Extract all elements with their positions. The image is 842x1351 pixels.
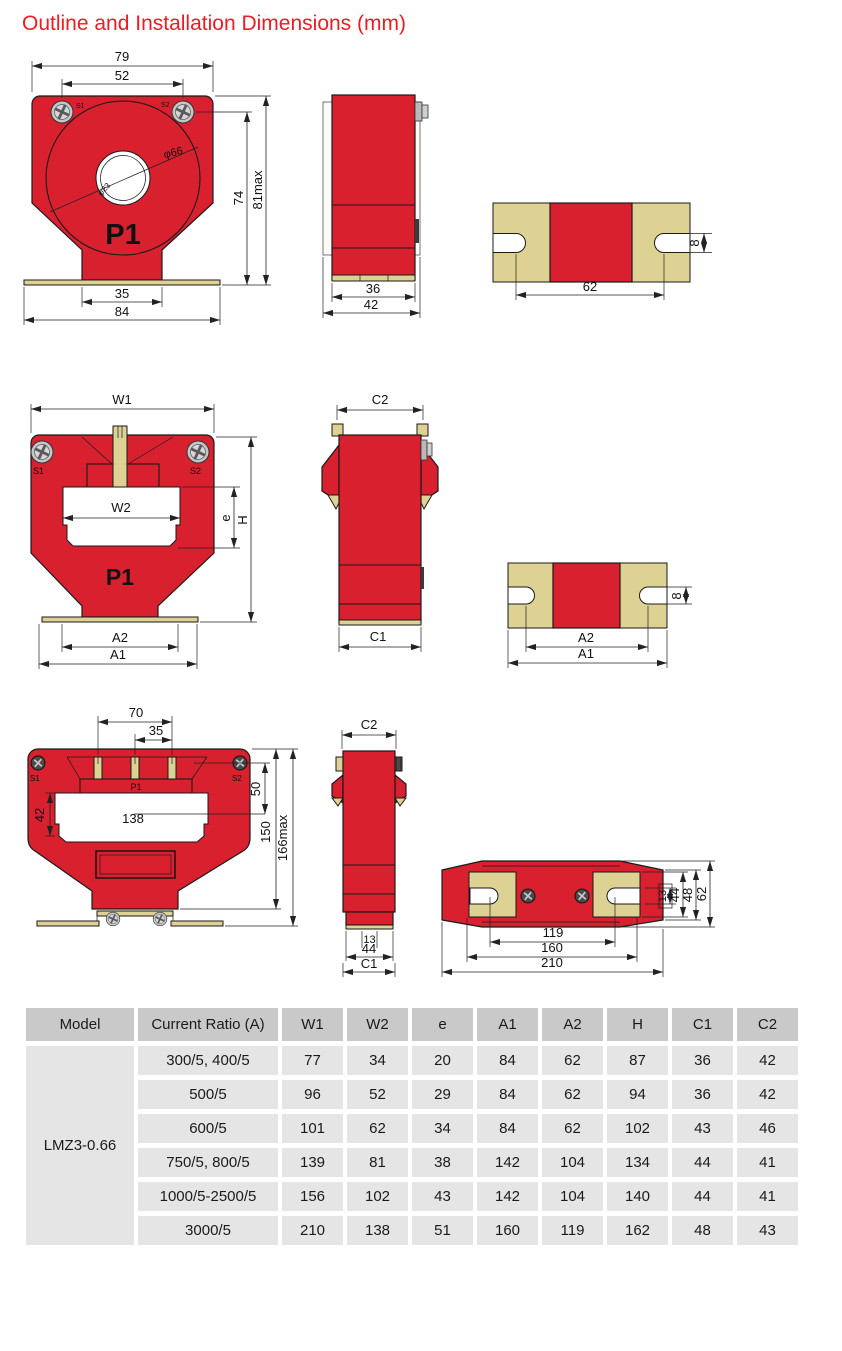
value-cell: 62: [347, 1114, 408, 1143]
col-header-c2: C2: [737, 1008, 798, 1041]
value-cell: 96: [282, 1080, 343, 1109]
terminal-screw-head: [422, 105, 428, 118]
svg-text:119: 119: [543, 925, 564, 940]
drawing-bottom-view-large: 13 44 48 62 119: [442, 861, 715, 977]
ratio-cell: 300/5, 400/5: [138, 1046, 278, 1075]
mount-slot-left: [508, 587, 535, 604]
dim-c1: C1: [339, 627, 421, 652]
value-cell: 44: [672, 1148, 733, 1177]
mount-slot-right: [640, 587, 667, 604]
ratio-cell: 500/5: [138, 1080, 278, 1109]
ct-body: [343, 751, 395, 912]
wing-left: [322, 445, 339, 502]
terminal-screw: [421, 440, 427, 460]
terminal-label-p1: P1: [105, 219, 140, 251]
svg-text:8: 8: [687, 239, 702, 246]
value-cell: 38: [412, 1148, 473, 1177]
value-cell: 142: [477, 1148, 538, 1177]
value-cell: 36: [672, 1080, 733, 1109]
value-cell: 77: [282, 1046, 343, 1075]
drawing-side-view-small: 36 42: [323, 95, 428, 318]
clamp-tab-left: [332, 424, 343, 436]
svg-text:70: 70: [129, 705, 143, 720]
screw-icon: [51, 101, 73, 123]
value-cell: 44: [672, 1182, 733, 1211]
outline-drawings: φ66 φ23 S1 S2 P1 79 52 74: [0, 0, 842, 1000]
value-cell: 62: [542, 1080, 603, 1109]
value-cell: 42: [737, 1080, 798, 1109]
terminal-label-s1: S1: [76, 103, 85, 110]
value-cell: 43: [737, 1216, 798, 1245]
screw-icon: [187, 441, 209, 463]
value-cell: 162: [607, 1216, 668, 1245]
drawing-side-view-large: C2 13 44 C1: [332, 717, 406, 977]
svg-text:C2: C2: [372, 392, 389, 407]
svg-text:35: 35: [115, 286, 129, 301]
dimensions-table: Model Current Ratio (A) W1 W2 e A1 A2 H …: [22, 1003, 802, 1250]
dim-c2: C2: [342, 717, 396, 749]
terminal-label-s1: S1: [33, 466, 44, 476]
value-cell: 84: [477, 1080, 538, 1109]
window: [63, 487, 180, 546]
drawing-side-view-medium: C2 C1: [322, 392, 438, 652]
svg-text:36: 36: [366, 281, 380, 296]
screw-icon: [31, 756, 45, 770]
col-header-e: e: [412, 1008, 473, 1041]
svg-text:H: H: [235, 515, 250, 524]
dim-52: 52: [62, 68, 183, 98]
drawing-front-view-medium: S1 S2 P1 W1 W2 e H: [31, 392, 257, 669]
value-cell: 29: [412, 1080, 473, 1109]
svg-text:74: 74: [231, 191, 246, 205]
terminal-label-s2: S2: [232, 774, 242, 783]
value-cell: 52: [347, 1080, 408, 1109]
ratio-cell: 1000/5-2500/5: [138, 1182, 278, 1211]
value-cell: 119: [542, 1216, 603, 1245]
svg-text:81max: 81max: [250, 170, 265, 210]
ct-body: [332, 95, 415, 280]
terminal-label-p1: P1: [130, 782, 141, 792]
table-row: 1000/5-2500/5 156 102 43 142 104 140 44 …: [26, 1182, 798, 1211]
value-cell: 101: [282, 1114, 343, 1143]
value-cell: 42: [737, 1046, 798, 1075]
svg-text:50: 50: [248, 782, 263, 796]
terminal-screw-head: [427, 443, 432, 456]
drawing-bottom-view-small: 62 8: [493, 203, 712, 300]
base-plate: [24, 280, 220, 285]
mount-slot-right: [655, 234, 691, 253]
ratio-cell: 3000/5: [138, 1216, 278, 1245]
svg-text:35: 35: [149, 723, 163, 738]
col-header-w1: W1: [282, 1008, 343, 1041]
drawing-front-view-small: φ66 φ23 S1 S2 P1 79 52 74: [24, 49, 271, 325]
dim-label-138: 138: [122, 811, 144, 826]
value-cell: 41: [737, 1148, 798, 1177]
svg-text:A2: A2: [578, 630, 594, 645]
svg-text:42: 42: [364, 297, 378, 312]
svg-text:150: 150: [258, 821, 273, 843]
mount-slot-left: [493, 234, 526, 253]
terminal-screw: [396, 757, 401, 771]
value-cell: 84: [477, 1114, 538, 1143]
value-cell: 134: [607, 1148, 668, 1177]
ct-body-lower: [346, 912, 393, 925]
terminal-screw: [415, 102, 422, 121]
value-cell: 210: [282, 1216, 343, 1245]
base-plate: [346, 925, 393, 929]
screw-icon: [106, 912, 120, 926]
value-cell: 94: [607, 1080, 668, 1109]
svg-text:C1: C1: [370, 629, 387, 644]
drawing-bottom-view-medium: 8 A2 A1: [508, 563, 692, 668]
value-cell: 140: [607, 1182, 668, 1211]
svg-text:160: 160: [541, 940, 563, 955]
table-row: 600/5 101 62 34 84 62 102 43 46: [26, 1114, 798, 1143]
value-cell: 160: [477, 1216, 538, 1245]
screw-icon: [575, 889, 589, 903]
table-row: 750/5, 800/5 139 81 38 142 104 134 44 41: [26, 1148, 798, 1177]
value-cell: 102: [607, 1114, 668, 1143]
datasheet-page: Outline and Installation Dimensions (mm)…: [0, 0, 842, 1351]
value-cell: 34: [347, 1046, 408, 1075]
svg-text:48: 48: [680, 888, 695, 902]
screw-icon: [153, 912, 167, 926]
mount-slot-right: [607, 888, 640, 904]
side-tab: [421, 567, 424, 589]
value-cell: 104: [542, 1182, 603, 1211]
dim-c2: C2: [337, 392, 423, 420]
table-row: LMZ3-0.66 300/5, 400/5 77 34 20 84 62 87…: [26, 1046, 798, 1075]
ct-body: [339, 435, 421, 623]
ct-body-footprint: [553, 563, 620, 628]
svg-text:210: 210: [541, 955, 563, 970]
svg-text:C2: C2: [361, 717, 378, 732]
svg-text:166max: 166max: [275, 814, 290, 861]
value-cell: 20: [412, 1046, 473, 1075]
col-header-ratio: Current Ratio (A): [138, 1008, 278, 1041]
value-cell: 43: [672, 1114, 733, 1143]
table-row: 500/5 96 52 29 84 62 94 36 42: [26, 1080, 798, 1109]
value-cell: 34: [412, 1114, 473, 1143]
svg-text:C1: C1: [361, 956, 378, 971]
svg-text:8: 8: [669, 592, 684, 599]
model-cell: LMZ3-0.66: [26, 1046, 134, 1245]
value-cell: 138: [347, 1216, 408, 1245]
terminal-label-s2: S2: [190, 466, 201, 476]
value-cell: 156: [282, 1182, 343, 1211]
svg-text:42: 42: [32, 808, 47, 822]
col-header-w2: W2: [347, 1008, 408, 1041]
svg-text:62: 62: [583, 279, 597, 294]
svg-text:44: 44: [362, 941, 376, 956]
screw-icon: [521, 889, 535, 903]
svg-text:W2: W2: [111, 500, 131, 515]
clamp-screw: [113, 426, 127, 496]
svg-text:A1: A1: [578, 646, 594, 661]
svg-text:e: e: [218, 514, 233, 521]
value-cell: 48: [672, 1216, 733, 1245]
value-cell: 142: [477, 1182, 538, 1211]
svg-text:W1: W1: [112, 392, 132, 407]
value-cell: 102: [347, 1182, 408, 1211]
value-cell: 43: [412, 1182, 473, 1211]
col-header-a2: A2: [542, 1008, 603, 1041]
table-header-row: Model Current Ratio (A) W1 W2 e A1 A2 H …: [26, 1008, 798, 1041]
value-cell: 62: [542, 1046, 603, 1075]
svg-text:52: 52: [115, 68, 129, 83]
terminal-label-s2: S2: [161, 102, 170, 109]
value-cell: 36: [672, 1046, 733, 1075]
base-plate: [339, 620, 421, 625]
svg-text:79: 79: [115, 49, 129, 64]
ct-body-footprint: [550, 203, 632, 282]
svg-text:A2: A2: [112, 630, 128, 645]
svg-text:A1: A1: [110, 647, 126, 662]
value-cell: 62: [542, 1114, 603, 1143]
col-header-c1: C1: [672, 1008, 733, 1041]
value-cell: 139: [282, 1148, 343, 1177]
value-cell: 81: [347, 1148, 408, 1177]
dim-c1: C1: [343, 956, 395, 977]
ratio-cell: 600/5: [138, 1114, 278, 1143]
dim-81max: 81max: [215, 96, 271, 285]
svg-text:62: 62: [694, 887, 709, 901]
drawing-front-view-large: S1 S2 P1 138: [28, 705, 298, 926]
mount-bracket: [37, 911, 223, 926]
side-tab: [415, 219, 419, 243]
table-row: 3000/5 210 138 51 160 119 162 48 43: [26, 1216, 798, 1245]
value-cell: 51: [412, 1216, 473, 1245]
terminal-label-s1: S1: [30, 774, 40, 783]
window-hole: [96, 151, 150, 205]
value-cell: 84: [477, 1046, 538, 1075]
foot-plate: [42, 617, 198, 622]
col-header-h: H: [607, 1008, 668, 1041]
value-cell: 104: [542, 1148, 603, 1177]
value-cell: 46: [737, 1114, 798, 1143]
col-header-model: Model: [26, 1008, 134, 1041]
ratio-cell: 750/5, 800/5: [138, 1148, 278, 1177]
screw-icon: [172, 101, 194, 123]
value-cell: 41: [737, 1182, 798, 1211]
clamp-tab-right: [417, 424, 428, 436]
mount-slot-left: [470, 888, 498, 904]
svg-text:84: 84: [115, 304, 129, 319]
terminal-label-p1: P1: [106, 564, 134, 590]
col-header-a1: A1: [477, 1008, 538, 1041]
screw-icon: [31, 441, 53, 463]
value-cell: 87: [607, 1046, 668, 1075]
